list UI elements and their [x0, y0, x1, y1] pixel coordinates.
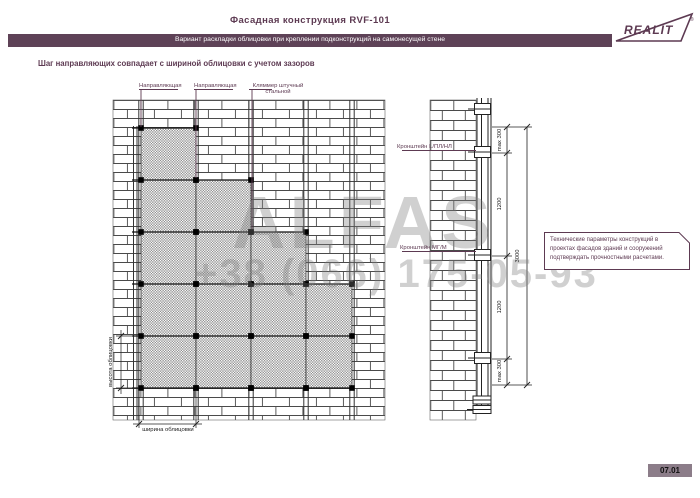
cladding-height-label: высота облицовки: [108, 337, 114, 387]
cladding-panel: [141, 284, 196, 336]
dim-total-3000: 3000: [515, 249, 521, 262]
cladding-panel: [141, 180, 196, 232]
clamp-marker: [193, 177, 199, 183]
drawing-sheet: Фасадная конструкция RVF-101 Вариант рас…: [0, 0, 700, 498]
clamp-marker: [349, 385, 355, 391]
watermark-phone: +38 (066) 175-05-93: [194, 254, 598, 294]
clamp-marker: [138, 177, 144, 183]
dim-max300-top: max 300: [497, 129, 503, 152]
clamp-marker: [248, 333, 254, 339]
realit-logo: REALIT ®: [611, 8, 699, 50]
cladding-panel: [141, 336, 196, 388]
note-text: Технические параметры конструкций в прое…: [550, 236, 682, 263]
clamp-marker: [138, 333, 144, 339]
note-callout: Технические параметры конструкций в прое…: [544, 232, 690, 270]
clamp-marker: [193, 385, 199, 391]
clamp-marker: [193, 229, 199, 235]
page-number-badge: 07.01: [648, 464, 692, 477]
clamp-marker: [138, 229, 144, 235]
realit-logo-text: REALIT: [624, 23, 673, 37]
bracket-mid-label: Кронштейн МГ/М: [400, 245, 447, 251]
cladding-panel: [141, 128, 196, 180]
clamp-marker: [138, 385, 144, 391]
clamp-marker: [303, 333, 309, 339]
dim-1200-lower: 1200: [497, 300, 503, 313]
drawing-subtitle: Шаг направляющих совпадает с шириной обл…: [38, 59, 315, 68]
clamp-marker: [138, 281, 144, 287]
cladding-panel: [196, 336, 251, 388]
bracket-top-label: Кронштейн L/ПЛ/НЛ: [397, 144, 452, 150]
clamp-marker: [193, 333, 199, 339]
clamp-marker: [303, 385, 309, 391]
watermark-brand: ALFAS: [232, 186, 495, 260]
dim-max300-bottom: max 300: [497, 360, 503, 383]
cladding-width-label: ширина облицовки: [142, 427, 193, 433]
registered-mark: ®: [690, 17, 694, 23]
dim-1200-upper: 1200: [497, 197, 503, 210]
page-title: Фасадная конструкция RVF-101: [8, 15, 612, 26]
cladding-panel: [251, 336, 306, 388]
cladding-panel: [306, 336, 352, 388]
variant-banner: Вариант раскладки облицовки при креплени…: [8, 34, 612, 47]
clamp-label: Кляммер штучный стальной: [246, 83, 310, 95]
rail-label-2: Направляющая: [194, 83, 237, 89]
clamp-marker: [248, 385, 254, 391]
cladding-panel: [141, 232, 196, 284]
clamp-marker: [349, 333, 355, 339]
rail-label-1: Направляющая: [139, 83, 182, 89]
